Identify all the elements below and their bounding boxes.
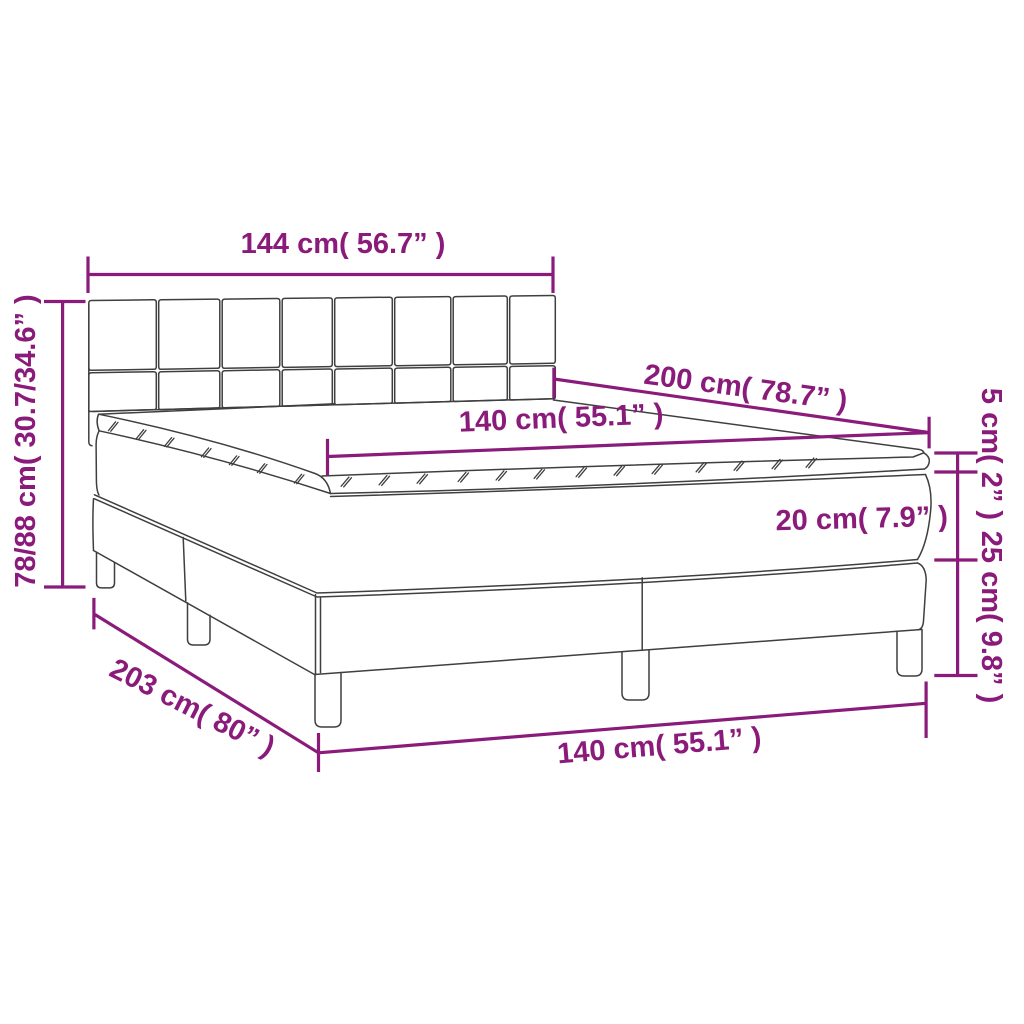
svg-text:144 cm( 56.7” ): 144 cm( 56.7” ) xyxy=(241,228,446,260)
svg-text:25 cm( 9.8” ): 25 cm( 9.8” ) xyxy=(975,531,1007,703)
svg-text:5 cm( 2” ): 5 cm( 2” ) xyxy=(975,388,1007,520)
svg-text:20 cm( 7.9” ): 20 cm( 7.9” ) xyxy=(775,501,948,538)
svg-text:140 cm( 55.1” ): 140 cm( 55.1” ) xyxy=(556,722,763,771)
svg-text:203 cm( 80” ): 203 cm( 80” ) xyxy=(104,653,279,763)
svg-text:140 cm( 55.1” ): 140 cm( 55.1” ) xyxy=(458,398,664,439)
svg-text:78/88 cm( 30.7/34.6” ): 78/88 cm( 30.7/34.6” ) xyxy=(10,294,42,587)
svg-text:200 cm( 78.7” ): 200 cm( 78.7” ) xyxy=(642,359,849,418)
